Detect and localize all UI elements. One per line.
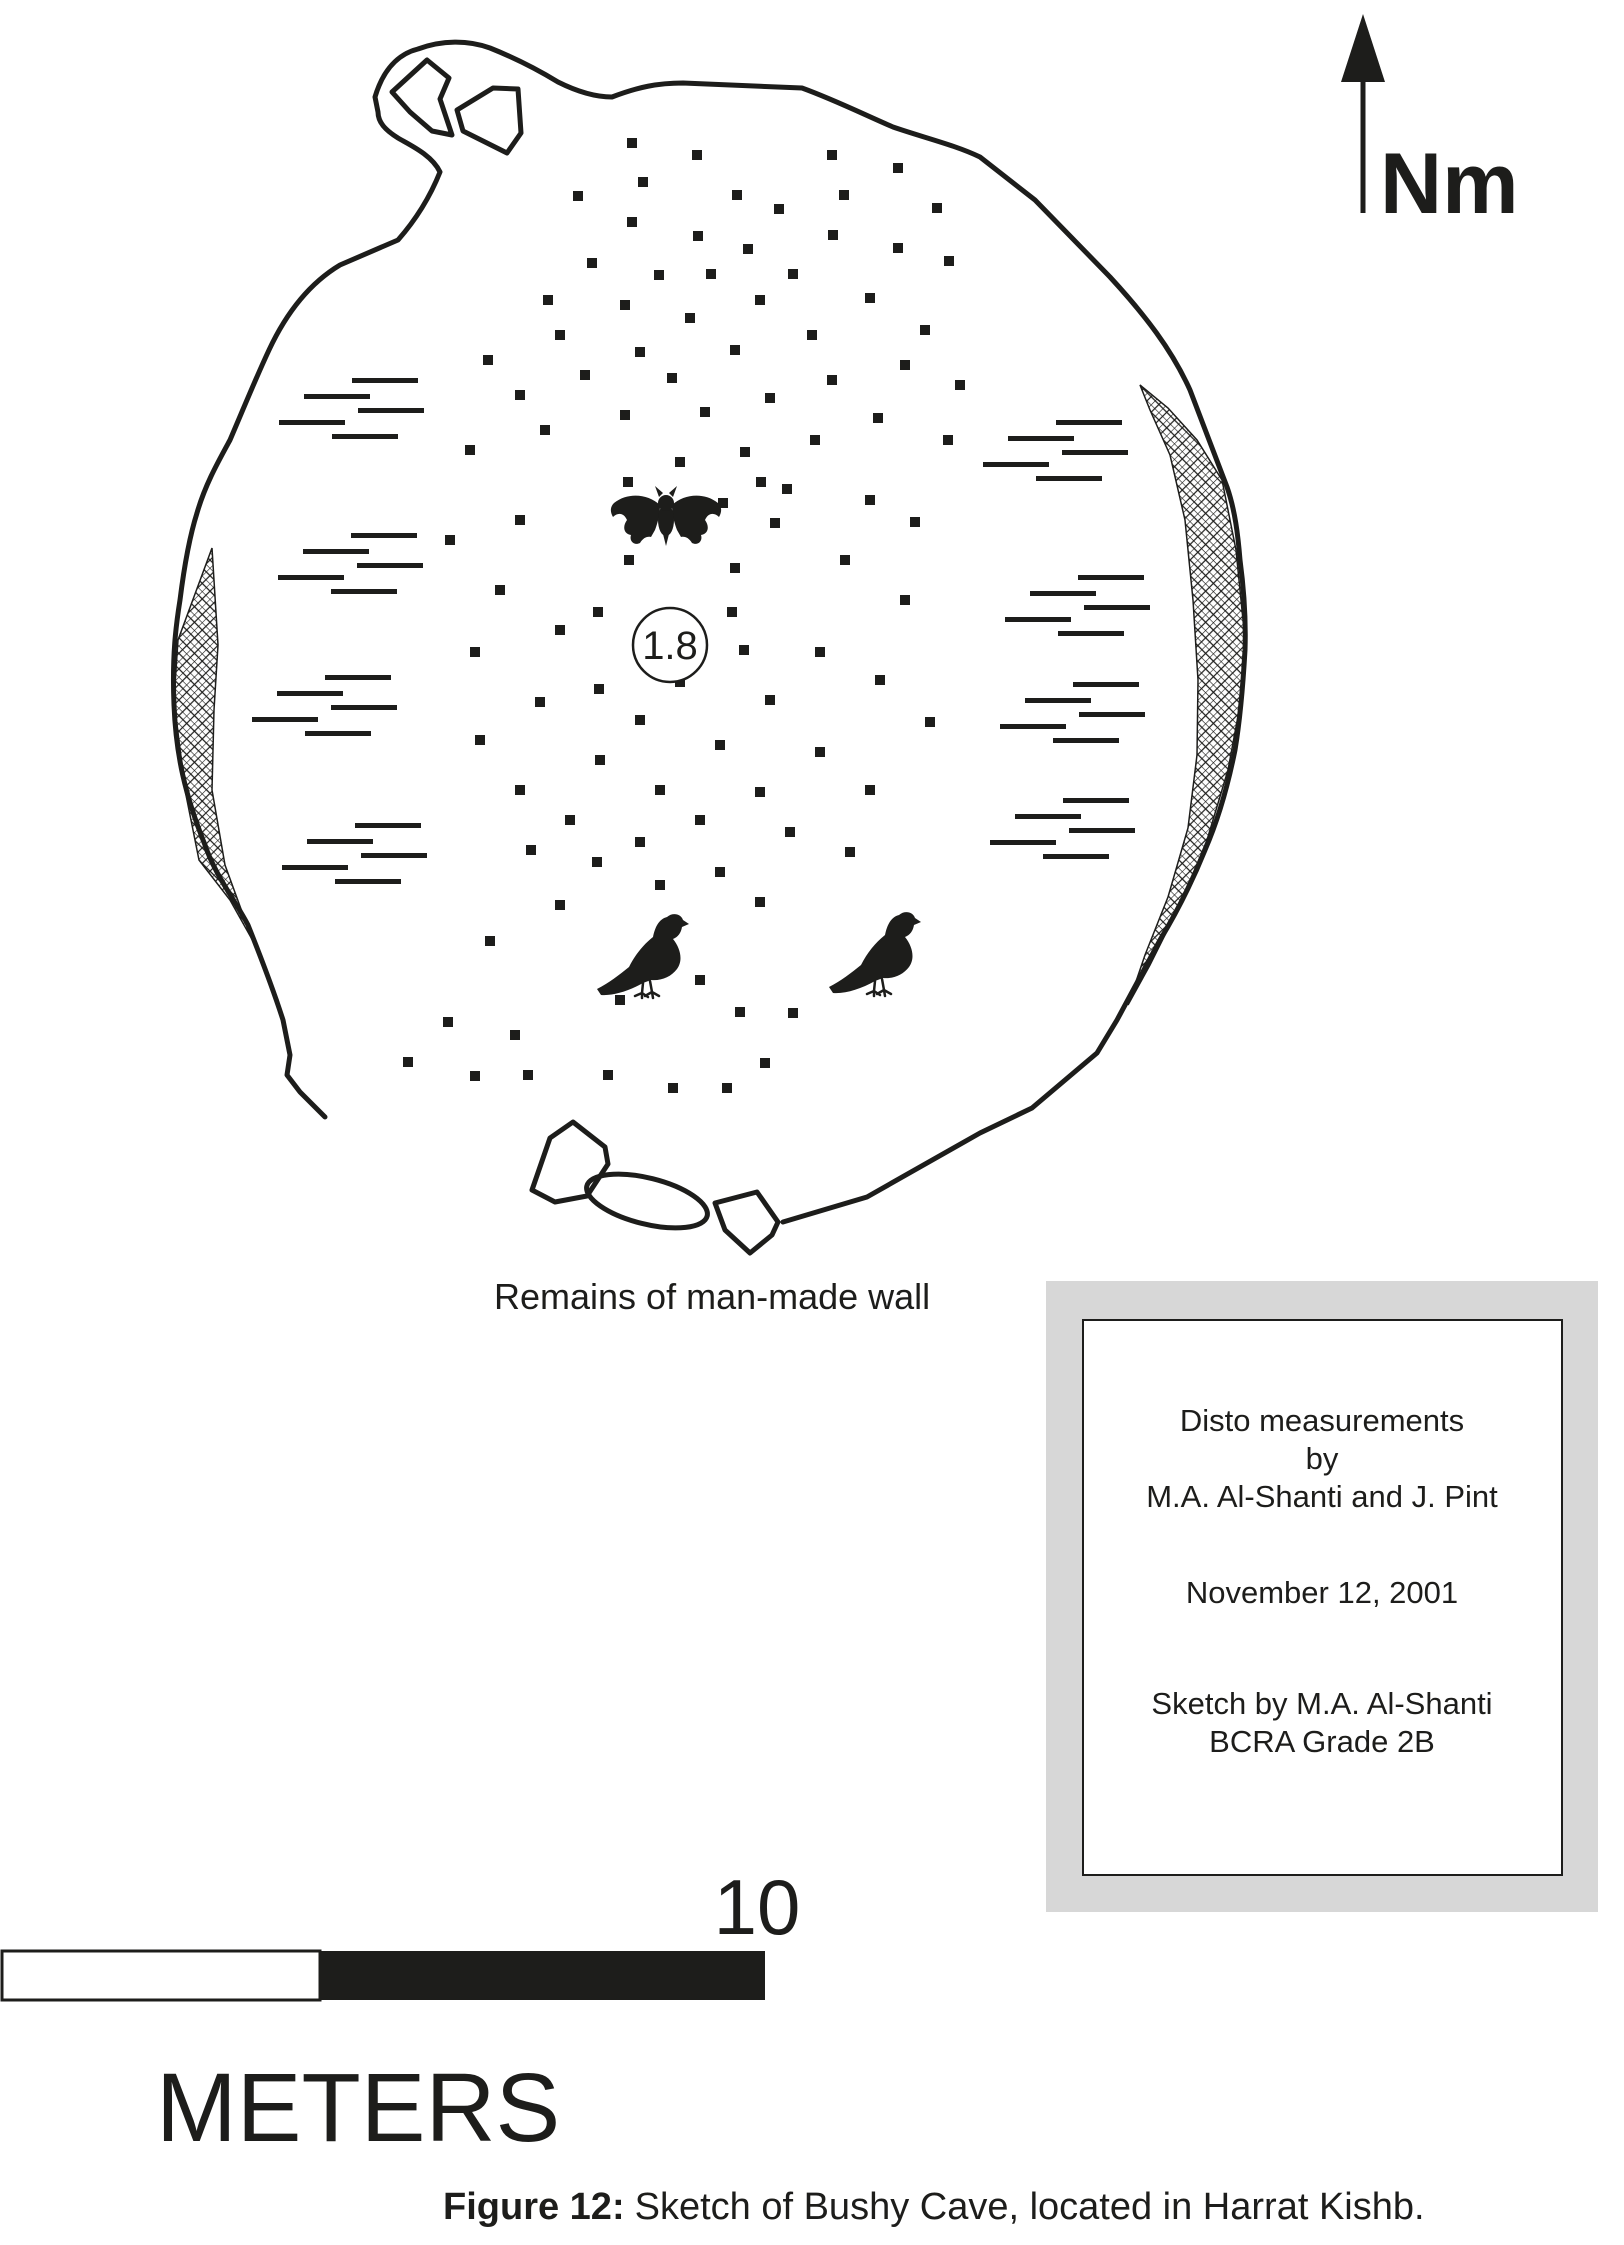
breakdown-dot <box>873 413 883 423</box>
breakdown-dot <box>722 1083 732 1093</box>
breakdown-dot <box>523 1070 533 1080</box>
ledge-line <box>1005 617 1071 622</box>
breakdown-dot <box>875 675 885 685</box>
breakdown-dot <box>445 535 455 545</box>
breakdown-dot <box>706 269 716 279</box>
breakdown-dot <box>732 190 742 200</box>
ledge-line <box>1015 814 1081 819</box>
breakdown-dot <box>443 1017 453 1027</box>
breakdown-dot <box>495 585 505 595</box>
north-label: Nm <box>1380 136 1519 232</box>
ledge-line <box>1036 476 1102 481</box>
ledge-line <box>1073 682 1139 687</box>
scale-bar-black-segment <box>320 1951 765 2000</box>
breakdown-dot <box>685 313 695 323</box>
breakdown-dot <box>695 815 705 825</box>
breakdown-dot <box>403 1057 413 1067</box>
ceiling-height-value: 1.8 <box>642 624 698 668</box>
ledge-line <box>1000 724 1066 729</box>
breakdown-dot <box>900 360 910 370</box>
breakdown-dot <box>620 410 630 420</box>
caption-text: Sketch of Bushy Cave, located in Harrat … <box>635 2186 1425 2228</box>
breakdown-dot <box>603 1070 613 1080</box>
breakdown-dot <box>730 345 740 355</box>
breakdown-dot <box>788 1008 798 1018</box>
breakdown-dot <box>635 715 645 725</box>
breakdown-dot <box>655 785 665 795</box>
info-line: by <box>1306 1441 1339 1476</box>
ledge-line <box>361 853 427 858</box>
ledge-line <box>351 533 417 538</box>
breakdown-dot <box>765 695 775 705</box>
breakdown-dot <box>807 330 817 340</box>
breakdown-dot <box>540 425 550 435</box>
breakdown-dot <box>740 447 750 457</box>
breakdown-dot <box>593 607 603 617</box>
breakdown-dot <box>515 390 525 400</box>
breakdown-dot <box>865 495 875 505</box>
info-line: Disto measurements <box>1180 1403 1464 1438</box>
breakdown-dot <box>635 347 645 357</box>
ledge-line <box>1030 591 1096 596</box>
breakdown-dot <box>624 555 634 565</box>
breakdown-dot <box>755 897 765 907</box>
ledge-line <box>305 731 371 736</box>
ledge-line <box>1078 575 1144 580</box>
breakdown-dot <box>743 244 753 254</box>
ledge-line <box>358 408 424 413</box>
ledge-line <box>1058 631 1124 636</box>
breakdown-dot <box>510 1030 520 1040</box>
breakdown-dot <box>620 300 630 310</box>
breakdown-dot <box>615 995 625 1005</box>
ledge-line <box>1025 698 1091 703</box>
ledge-line <box>303 549 369 554</box>
ledge-line <box>304 394 370 399</box>
breakdown-dot <box>735 1007 745 1017</box>
breakdown-dot <box>695 975 705 985</box>
ledge-line <box>983 462 1049 467</box>
breakdown-dot <box>955 380 965 390</box>
breakdown-dot <box>810 435 820 445</box>
breakdown-dot <box>943 435 953 445</box>
ledge-line <box>332 434 398 439</box>
breakdown-dot <box>623 477 633 487</box>
ledge-line <box>352 378 418 383</box>
breakdown-dot <box>693 231 703 241</box>
scale-bar-white-segment <box>2 1951 320 2000</box>
ledge-line <box>1079 712 1145 717</box>
breakdown-dot <box>944 256 954 266</box>
scale-bar <box>2 1951 765 2000</box>
breakdown-dot <box>920 325 930 335</box>
breakdown-dot <box>515 515 525 525</box>
breakdown-dot <box>900 595 910 605</box>
breakdown-dot <box>535 697 545 707</box>
breakdown-dot <box>555 625 565 635</box>
breakdown-dot <box>755 295 765 305</box>
ledge-line <box>252 717 318 722</box>
ledge-line <box>1008 436 1074 441</box>
breakdown-dot <box>483 355 493 365</box>
breakdown-dot <box>555 330 565 340</box>
ledge-line <box>279 420 345 425</box>
ledge-line <box>277 691 343 696</box>
breakdown-dot <box>827 375 837 385</box>
ledge-line <box>1053 738 1119 743</box>
breakdown-dot <box>700 407 710 417</box>
breakdown-dot <box>580 370 590 380</box>
breakdown-dot <box>893 243 903 253</box>
breakdown-dot <box>839 190 849 200</box>
breakdown-dot <box>925 717 935 727</box>
breakdown-dot <box>627 217 637 227</box>
breakdown-dot <box>932 203 942 213</box>
breakdown-dot <box>755 787 765 797</box>
figure-caption: Figure 12:Sketch of Bushy Cave, located … <box>443 2186 1425 2228</box>
info-line: November 12, 2001 <box>1186 1575 1458 1610</box>
ledge-line <box>990 840 1056 845</box>
ledge-line <box>1069 828 1135 833</box>
ledge-line <box>1056 420 1122 425</box>
breakdown-dot <box>595 755 605 765</box>
ledge-line <box>1062 450 1128 455</box>
ledge-line <box>278 575 344 580</box>
breakdown-dot <box>828 230 838 240</box>
breakdown-dot <box>470 647 480 657</box>
ledge-line <box>335 879 401 884</box>
info-line: BCRA Grade 2B <box>1209 1724 1435 1759</box>
breakdown-dot <box>893 163 903 173</box>
ledge-line <box>1063 798 1129 803</box>
ledge-line <box>357 563 423 568</box>
wall-annotation: Remains of man-made wall <box>494 1276 930 1317</box>
breakdown-dot <box>910 517 920 527</box>
breakdown-dot <box>543 295 553 305</box>
breakdown-dot <box>785 827 795 837</box>
cave-sketch-figure: 1.8 Nm Remains of man-made wall Disto me… <box>0 0 1624 2245</box>
breakdown-dot <box>555 900 565 910</box>
breakdown-dot <box>470 1071 480 1081</box>
breakdown-dot <box>655 880 665 890</box>
scale-unit-label: METERS <box>156 2053 560 2162</box>
breakdown-dot <box>715 740 725 750</box>
breakdown-dot <box>638 177 648 187</box>
breakdown-dot <box>668 1083 678 1093</box>
breakdown-dot <box>515 785 525 795</box>
ledge-line <box>325 675 391 680</box>
breakdown-dot <box>739 645 749 655</box>
breakdown-dot <box>475 735 485 745</box>
breakdown-dot <box>594 684 604 694</box>
breakdown-dot <box>627 138 637 148</box>
info-line: M.A. Al-Shanti and J. Pint <box>1146 1479 1498 1514</box>
breakdown-dot <box>565 815 575 825</box>
breakdown-dot <box>774 204 784 214</box>
breakdown-dot <box>715 867 725 877</box>
breakdown-dot <box>465 445 475 455</box>
ledge-line <box>331 589 397 594</box>
ledge-line <box>1043 854 1109 859</box>
scale-max-value: 10 <box>714 1863 801 1951</box>
breakdown-dot <box>782 484 792 494</box>
breakdown-dot <box>756 477 766 487</box>
breakdown-dot <box>526 845 536 855</box>
ledge-line <box>355 823 421 828</box>
ledge-line <box>331 705 397 710</box>
breakdown-dot <box>840 555 850 565</box>
info-line: Sketch by M.A. Al-Shanti <box>1151 1686 1492 1721</box>
breakdown-dot <box>865 785 875 795</box>
breakdown-dot <box>692 150 702 160</box>
breakdown-dot <box>675 457 685 467</box>
breakdown-dot <box>865 293 875 303</box>
breakdown-dot <box>815 647 825 657</box>
breakdown-dot <box>760 1058 770 1068</box>
breakdown-dot <box>573 191 583 201</box>
breakdown-dot <box>730 563 740 573</box>
breakdown-dot <box>654 270 664 280</box>
breakdown-dot <box>765 393 775 403</box>
breakdown-dot <box>592 857 602 867</box>
breakdown-dot <box>635 837 645 847</box>
breakdown-dot <box>667 373 677 383</box>
breakdown-dot <box>845 847 855 857</box>
ledge-line <box>307 839 373 844</box>
breakdown-dot <box>788 269 798 279</box>
caption-number: Figure 12: <box>443 2186 625 2228</box>
ledge-line <box>282 865 348 870</box>
breakdown-dot <box>827 150 837 160</box>
ledge-line <box>1084 605 1150 610</box>
breakdown-dot <box>770 518 780 528</box>
breakdown-dot <box>727 607 737 617</box>
breakdown-dot <box>815 747 825 757</box>
breakdown-dot <box>587 258 597 268</box>
breakdown-dot <box>485 936 495 946</box>
